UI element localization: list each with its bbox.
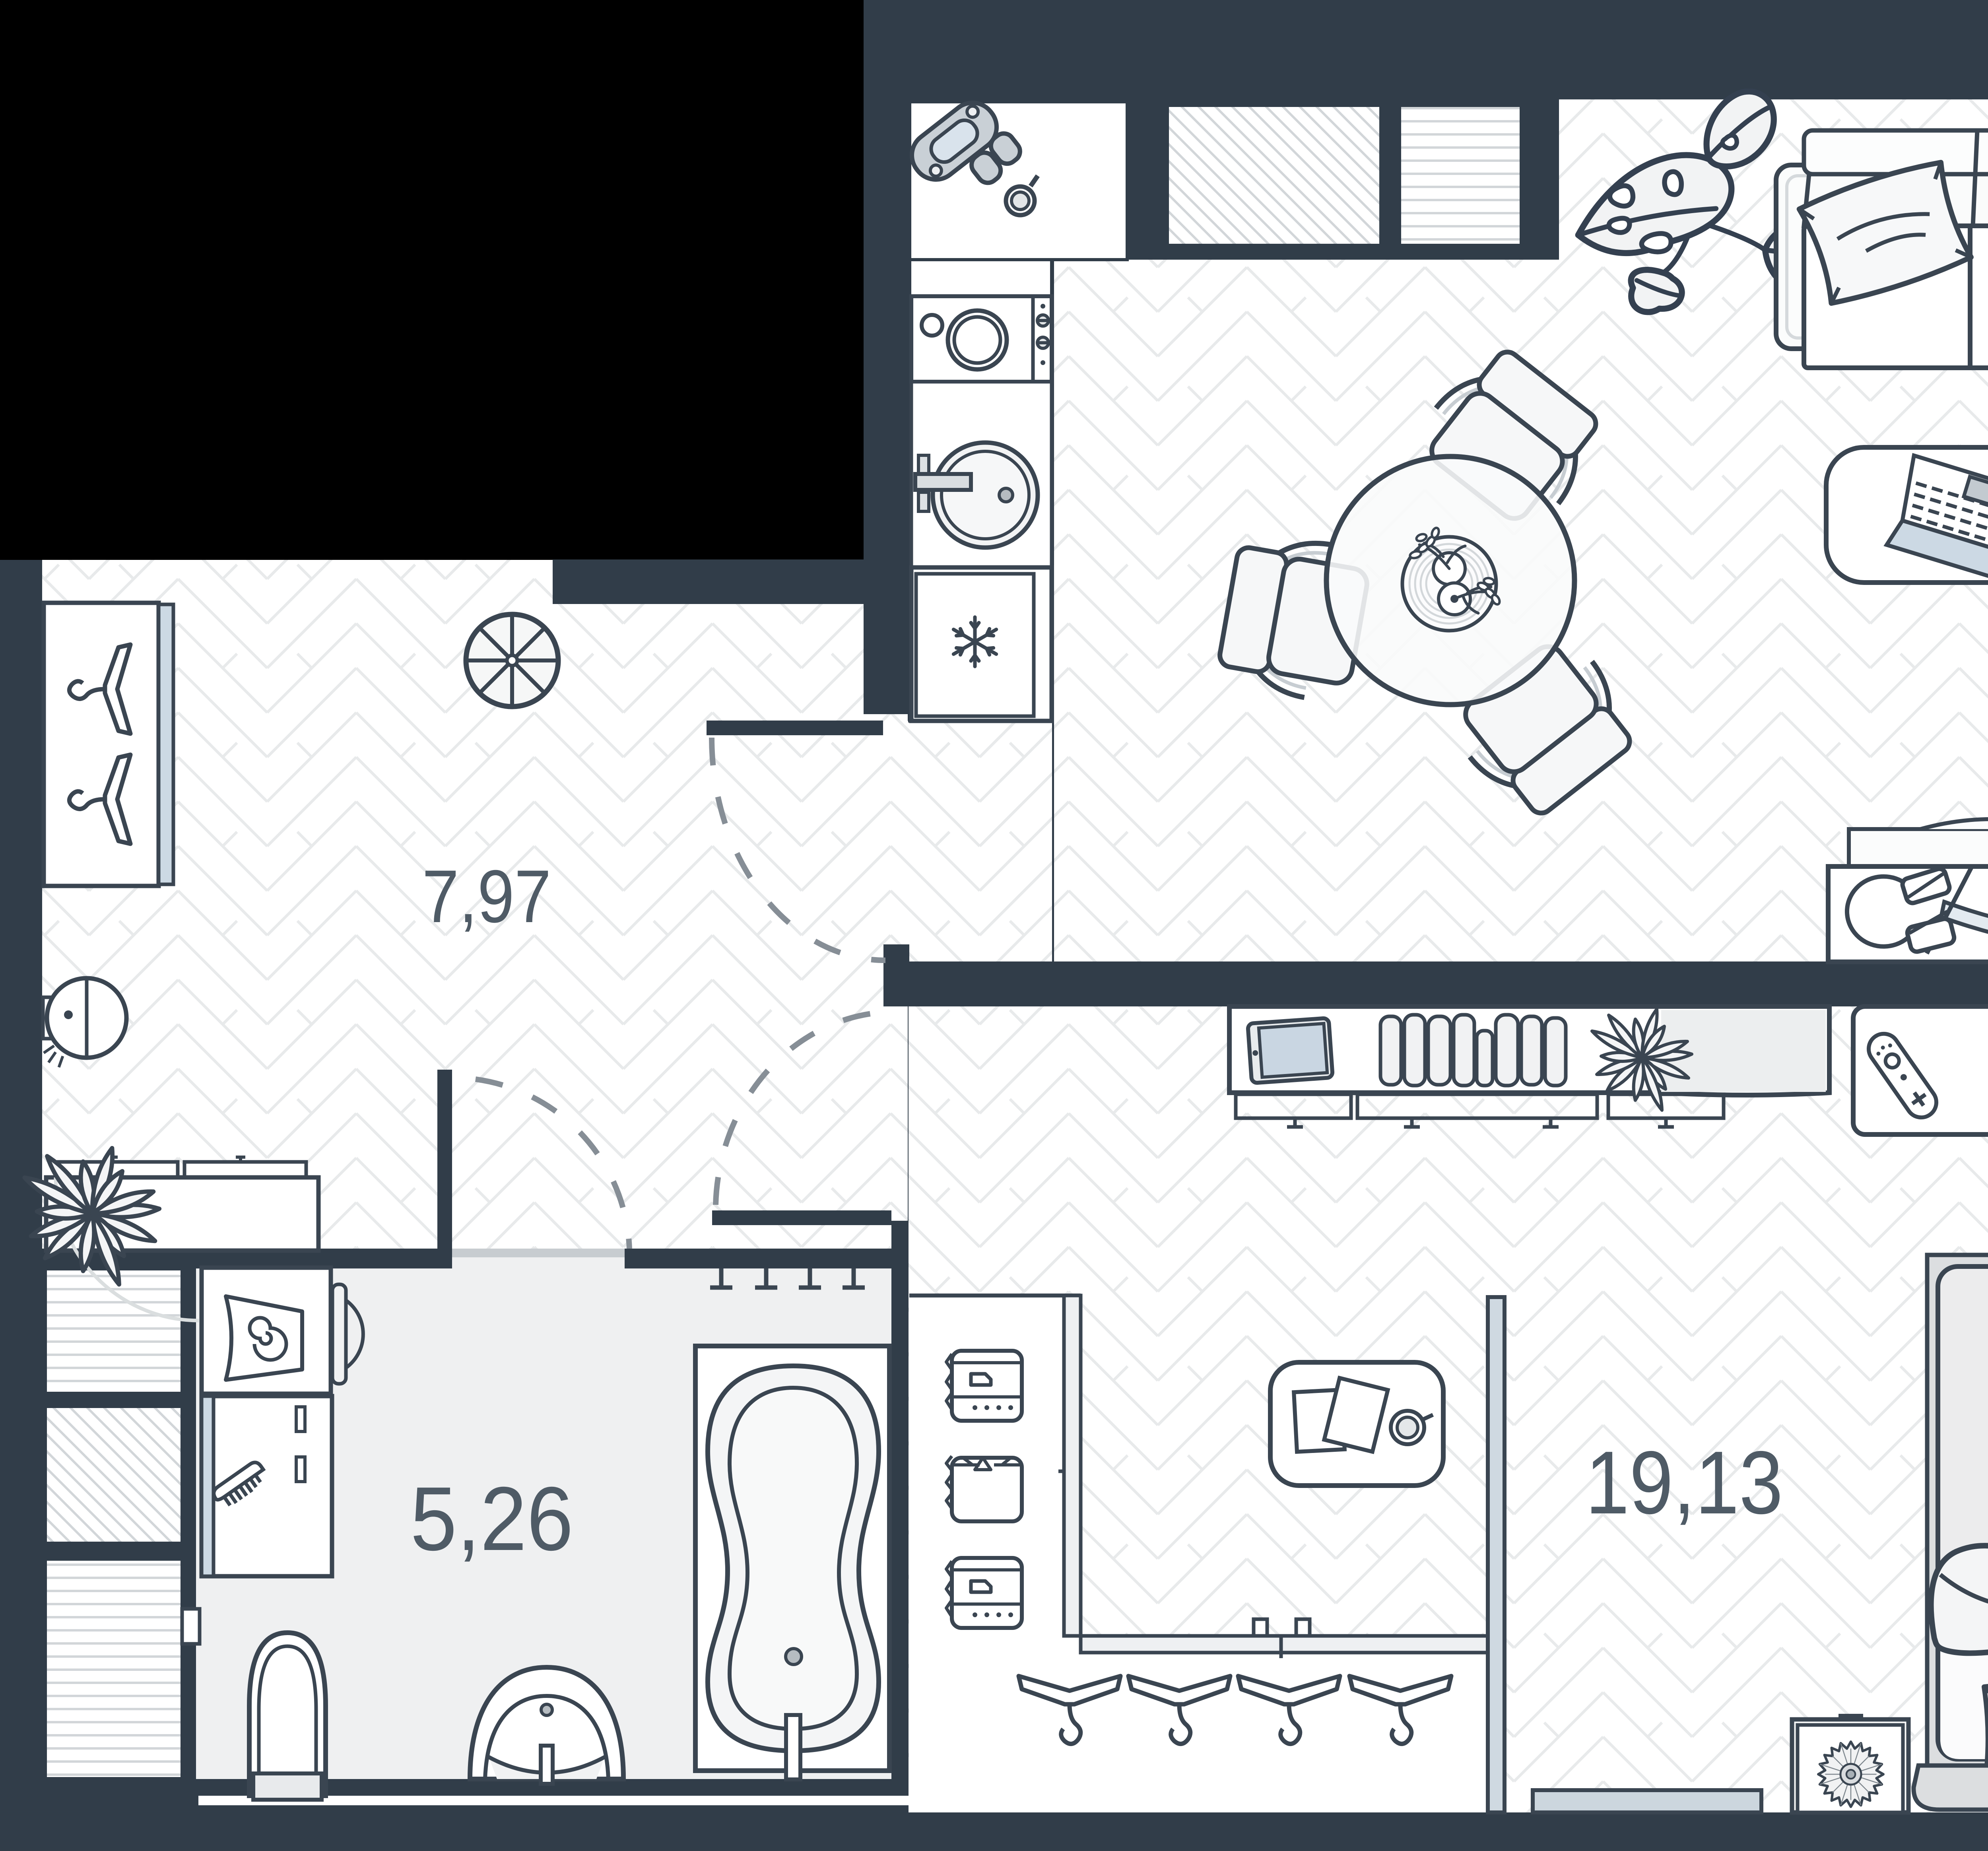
- svg-text:19,13: 19,13: [1586, 1432, 1783, 1532]
- svg-text:5,26: 5,26: [410, 1468, 573, 1569]
- svg-text:7,97: 7,97: [422, 855, 551, 938]
